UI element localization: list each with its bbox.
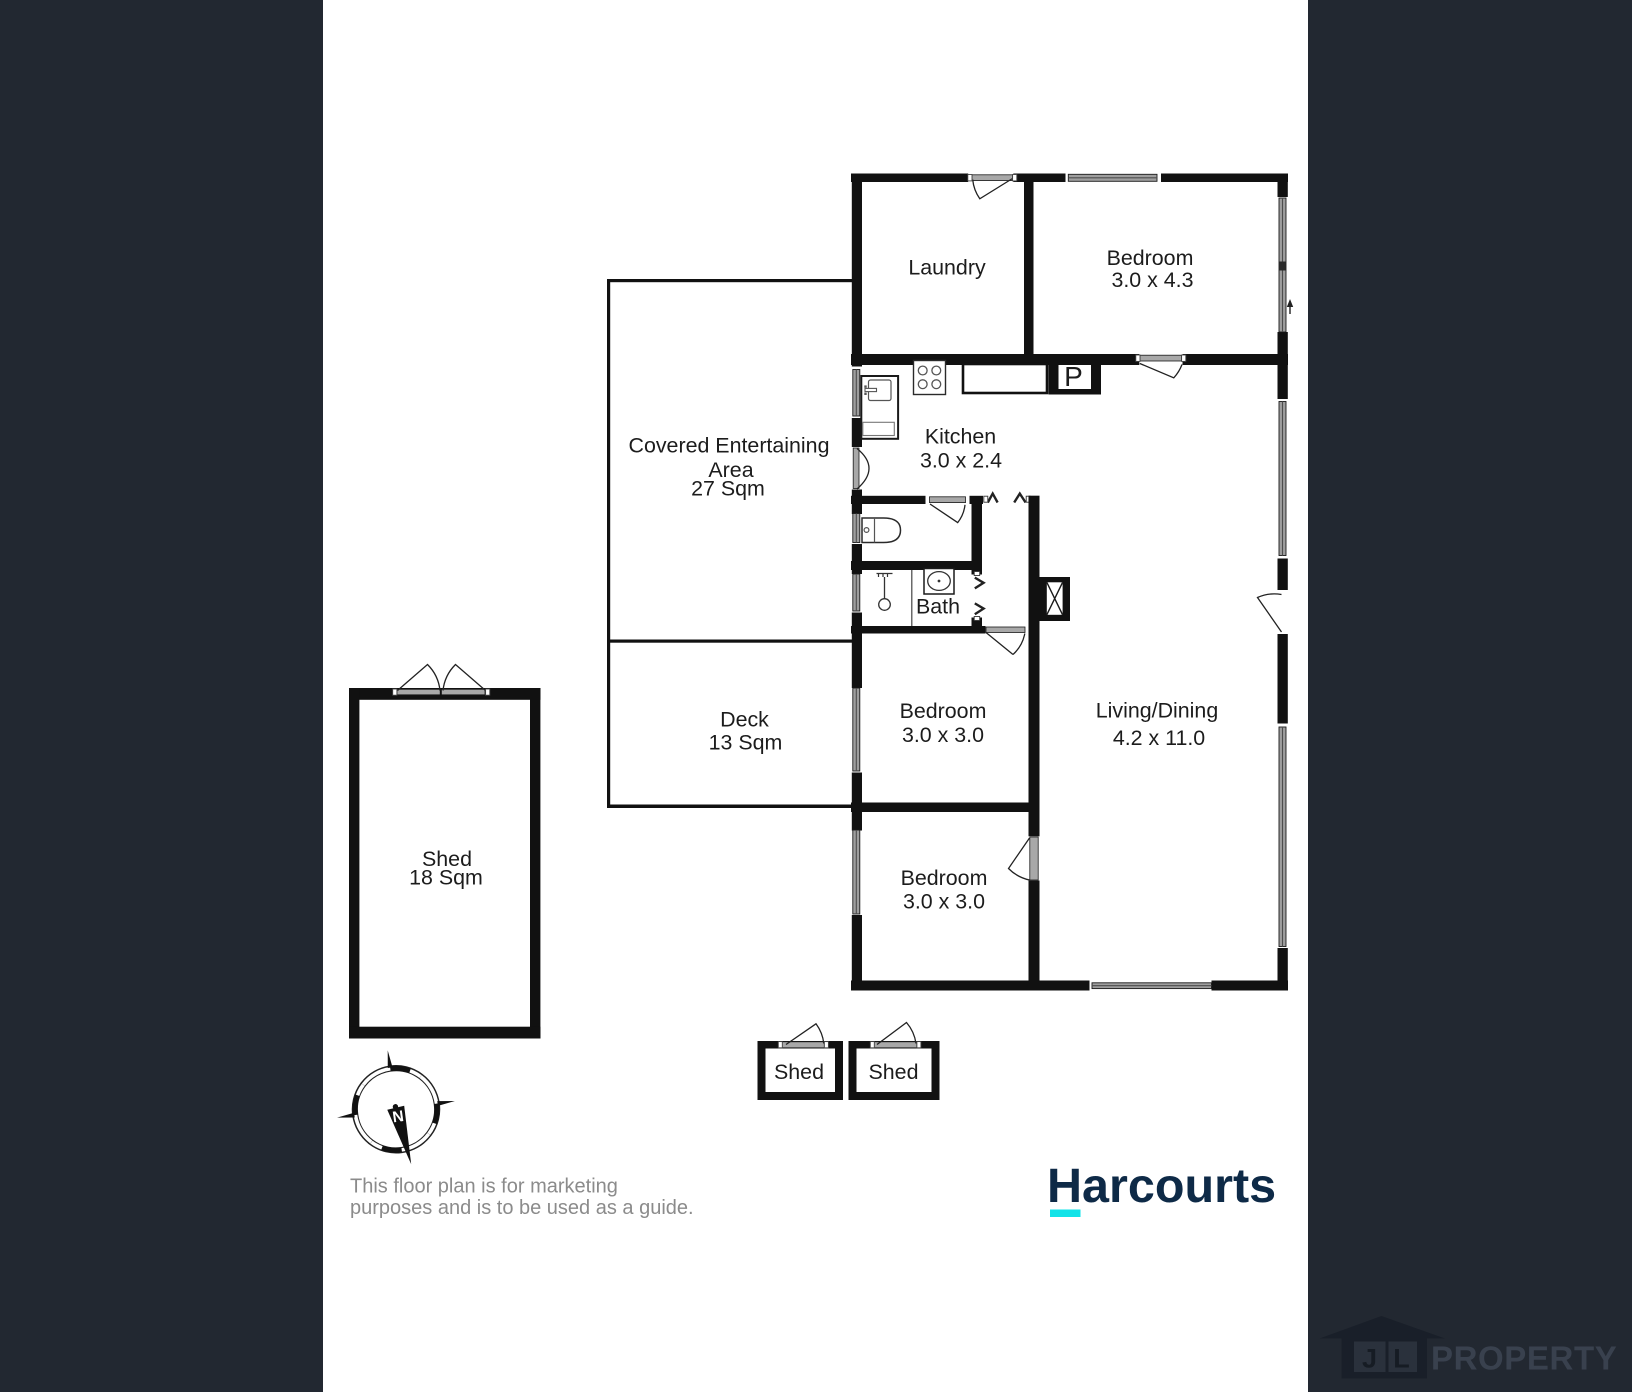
svg-text:Harcourts: Harcourts	[1047, 1159, 1276, 1213]
svg-text:PROPERTY: PROPERTY	[1431, 1340, 1617, 1377]
svg-text:Bedroom: Bedroom	[900, 699, 987, 723]
svg-text:P: P	[1064, 361, 1083, 392]
svg-text:Covered Entertaining: Covered Entertaining	[629, 434, 830, 458]
svg-text:Bedroom: Bedroom	[1107, 246, 1194, 270]
svg-text:Bedroom: Bedroom	[901, 866, 988, 890]
svg-text:3.0 x 3.0: 3.0 x 3.0	[902, 723, 984, 747]
svg-text:This floor plan is for marketi: This floor plan is for marketing	[350, 1176, 618, 1198]
svg-text:L: L	[1393, 1344, 1410, 1374]
svg-text:Shed: Shed	[869, 1060, 919, 1084]
svg-text:N: N	[391, 1108, 404, 1126]
svg-text:3.0 x 4.3: 3.0 x 4.3	[1111, 268, 1193, 292]
svg-text:13 Sqm: 13 Sqm	[709, 731, 783, 755]
svg-text:purposes and is to be used as: purposes and is to be used as a guide.	[350, 1197, 694, 1219]
svg-text:Deck: Deck	[720, 708, 769, 732]
svg-text:4.2 x 11.0: 4.2 x 11.0	[1113, 726, 1205, 750]
svg-text:3.0 x 3.0: 3.0 x 3.0	[903, 890, 985, 914]
svg-text:27 Sqm: 27 Sqm	[691, 477, 765, 501]
svg-text:Bath: Bath	[916, 595, 960, 619]
svg-text:Living/Dining: Living/Dining	[1096, 699, 1218, 723]
svg-text:Kitchen: Kitchen	[925, 425, 996, 449]
svg-text:3.0 x 2.4: 3.0 x 2.4	[920, 449, 1002, 473]
svg-text:Shed: Shed	[774, 1060, 824, 1084]
svg-text:18 Sqm: 18 Sqm	[409, 866, 483, 890]
svg-text:Laundry: Laundry	[908, 256, 986, 280]
svg-text:J: J	[1362, 1344, 1377, 1374]
